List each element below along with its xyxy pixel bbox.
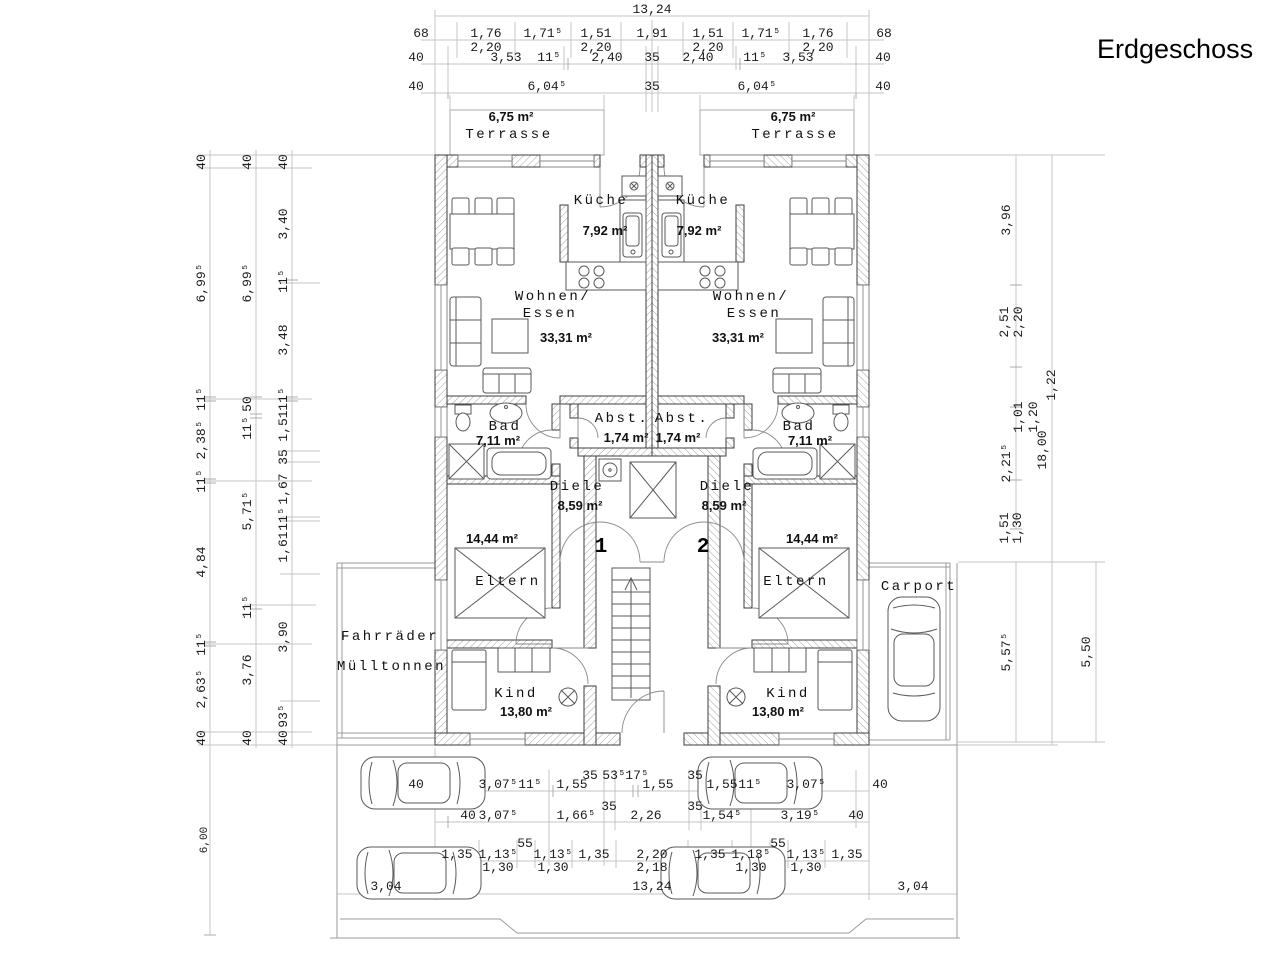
dim: 1,22: [1044, 369, 1059, 400]
dim: 2,51: [997, 306, 1012, 337]
shed-left-walls: [337, 563, 435, 738]
living-label1-right: Wohnen/: [713, 289, 789, 305]
dim: 3,07⁵: [786, 777, 825, 792]
dim: 18,00: [1035, 430, 1050, 469]
unit-left: [435, 155, 652, 745]
terrace-label-left: Terrasse: [465, 127, 552, 143]
storage-label-left: Abst.: [595, 411, 650, 427]
parents-label-left: Eltern: [475, 574, 540, 590]
terrace-area-right: 6,75 m²: [771, 109, 816, 124]
wall-segment: [570, 404, 578, 418]
dim: 2,26: [630, 808, 661, 823]
dim: 1,35: [831, 847, 862, 862]
bins-label: Mülltonnen: [337, 659, 446, 675]
wall-segment: [578, 448, 652, 456]
dim: 3,96: [999, 204, 1014, 235]
dim: 2,18: [636, 860, 667, 875]
wall-segment: [596, 733, 620, 745]
kitchen-label-right: Küche: [676, 193, 731, 209]
dim: 35: [687, 799, 703, 814]
dim: 40: [240, 154, 255, 170]
floorplan-drawing: Erdgeschoss 6,75 m² Terrasse 6,75 m² Ter…: [0, 0, 1280, 960]
dim: 11⁵: [743, 50, 766, 65]
dim: 1,55: [642, 777, 673, 792]
dim: 55: [517, 836, 533, 851]
page-title: Erdgeschoss: [1097, 34, 1253, 64]
dim: 1,01: [1011, 401, 1026, 432]
dim: 1,30: [537, 860, 568, 875]
dim: 13,24: [632, 879, 671, 894]
hall-area-right: 8,59 m²: [702, 498, 747, 513]
dim: 35: [644, 79, 660, 94]
dim: 11⁵: [240, 595, 255, 618]
chair: [497, 248, 514, 265]
dim: 3,90: [276, 621, 291, 652]
wall-segment: [435, 370, 447, 407]
unit-right-mirror: [652, 155, 869, 745]
terrace-label-right: Terrasse: [751, 127, 838, 143]
dim: 40: [408, 777, 424, 792]
stair-direction-arrow: [625, 578, 637, 698]
carport-car: [888, 597, 940, 721]
wall-segment: [570, 438, 578, 448]
dim: 4,84: [194, 546, 209, 577]
dim: 6,99⁵: [194, 263, 209, 302]
dresser: [498, 648, 550, 672]
dim: 1,30: [1010, 512, 1025, 543]
dim: 2,40: [682, 50, 713, 65]
dim: 11⁵: [276, 387, 291, 410]
kitchen-counter: [566, 262, 646, 290]
dim: 1,55: [706, 777, 737, 792]
dim: 2,20: [1011, 306, 1026, 337]
dim: 1,66⁵: [556, 808, 595, 823]
dim: 3,53: [782, 50, 813, 65]
wall-segment: [560, 396, 646, 404]
wall-segment: [447, 396, 526, 404]
dim: 50: [240, 396, 255, 412]
dim: 3,48: [276, 324, 291, 355]
machine-box: [599, 459, 621, 481]
dim: 6,99⁵: [240, 263, 255, 302]
kitchen-area-right: 7,92 m²: [677, 223, 722, 238]
chair: [475, 198, 492, 215]
living-group: [450, 297, 531, 393]
chair: [497, 198, 514, 215]
child-label-left: Kind: [494, 686, 538, 702]
dim: 40: [848, 808, 864, 823]
wall-segment: [584, 686, 596, 745]
carport-label: Carport: [881, 579, 957, 595]
dim: 1,76: [802, 26, 833, 41]
storage-area-right: 1,74 m²: [656, 430, 701, 445]
wall-segment: [594, 155, 600, 167]
kitchen-label-left: Küche: [574, 193, 629, 209]
chair: [452, 198, 469, 215]
dim: 2,38⁵: [194, 420, 209, 459]
dim: 40: [194, 154, 209, 170]
dim: 1,54⁵: [702, 808, 741, 823]
dim: 35: [276, 449, 291, 465]
child-area-right: 13,80 m²: [752, 704, 805, 719]
dim: 11⁵: [738, 777, 761, 792]
dim: 55: [770, 836, 786, 851]
dim: 1,35: [578, 847, 609, 862]
dim: 3,76: [240, 654, 255, 685]
living-label1-left: Wohnen/: [515, 289, 591, 305]
dim: 3,40: [276, 208, 291, 239]
dim: 35: [644, 50, 660, 65]
dim: 3,07⁵: [478, 777, 517, 792]
wall-segment: [435, 733, 470, 745]
dim: 1,71⁵: [523, 26, 562, 41]
wall-segment: [640, 155, 646, 167]
dim: 93⁵: [276, 704, 291, 727]
dim: 6,00: [199, 827, 211, 853]
dim: 1,91: [636, 26, 667, 41]
dim: 40: [276, 154, 291, 170]
dim: 40: [872, 777, 888, 792]
dim: 1,51: [692, 26, 723, 41]
bath-area-left: 7,11 m²: [476, 433, 521, 448]
living-label2-right: Essen: [727, 306, 782, 322]
bed: [452, 650, 486, 710]
dim-ext-left: [198, 155, 435, 745]
dim: 5,50: [1079, 636, 1094, 667]
unit-number-1: 1: [595, 536, 608, 559]
dim: 2,21⁵: [999, 443, 1014, 482]
toilet: [456, 413, 470, 431]
living-area-right: 33,31 m²: [712, 330, 765, 345]
dim: 3,19⁵: [780, 808, 819, 823]
parents-area-left: 14,44 m²: [466, 531, 519, 546]
dim: 6,04⁵: [527, 79, 566, 94]
dim: 11⁵: [194, 469, 209, 492]
dim: 40: [408, 79, 424, 94]
dim: 11⁵: [537, 50, 560, 65]
dim: 40: [408, 50, 424, 65]
dim: 3,07⁵: [478, 808, 517, 823]
entrance-door-arc: [622, 691, 664, 733]
terrace-area-left: 6,75 m²: [489, 109, 534, 124]
sofa: [450, 297, 481, 366]
wall-segment: [512, 155, 540, 167]
plant-leaves: [561, 690, 575, 704]
dim: 1,76: [470, 26, 501, 41]
dim: 40: [240, 730, 255, 746]
dim: 11⁵: [276, 507, 291, 530]
dim: 40: [194, 730, 209, 746]
hall-label-left: Diele: [550, 479, 605, 495]
parents-label-right: Eltern: [763, 574, 828, 590]
hall-label-right: Diele: [700, 479, 755, 495]
bath-area-right: 7,11 m²: [788, 433, 833, 448]
dim: 1,51: [276, 410, 291, 441]
child-area-left: 13,80 m²: [500, 704, 553, 719]
dim: 11⁵: [194, 387, 209, 410]
dim: 1,20: [1026, 401, 1041, 432]
dim: 11⁵: [194, 632, 209, 655]
unit-number-2: 2: [697, 536, 710, 559]
dim: 3,04: [897, 879, 928, 894]
dim: 11⁵: [276, 269, 291, 292]
dim: 40: [875, 79, 891, 94]
dim: 5,71⁵: [240, 491, 255, 530]
wall-segment: [435, 437, 447, 580]
dim: 1,35: [441, 847, 472, 862]
dim: 1,51: [580, 26, 611, 41]
living-area-left: 33,31 m²: [540, 330, 593, 345]
dim: 11⁵: [240, 416, 255, 439]
dim: 35: [582, 768, 598, 783]
storage-area-left: 1,74 m²: [604, 430, 649, 445]
living-label2-left: Essen: [523, 306, 578, 322]
sofa: [483, 368, 531, 393]
dim: 3,04: [370, 879, 401, 894]
wall-segment: [646, 155, 652, 448]
hall-area-left: 8,59 m²: [558, 498, 603, 513]
child-label-right: Kind: [766, 686, 810, 702]
dim: 1,30: [735, 860, 766, 875]
dim: 1,61: [276, 531, 291, 562]
dim: 35: [687, 768, 703, 783]
dim: 5,57⁵: [999, 632, 1014, 671]
wall-segment: [560, 205, 568, 262]
dim: 1,67: [276, 473, 291, 504]
kitchen-area-left: 7,92 m²: [583, 223, 628, 238]
dim: 40: [460, 808, 476, 823]
dim: 53⁵: [602, 768, 625, 783]
bikes-label: Fahrräder: [341, 629, 439, 645]
dim: 13,24: [632, 2, 671, 17]
dining-table: [450, 214, 514, 249]
dim: 68: [413, 26, 429, 41]
coffee-table: [492, 319, 528, 353]
dim: 1,30: [482, 860, 513, 875]
dim: 1,35: [694, 847, 725, 862]
dim: 1,30: [790, 860, 821, 875]
dim: 3,53: [490, 50, 521, 65]
door-arc: [552, 648, 588, 684]
dim: 6,04⁵: [737, 79, 776, 94]
dim: 35: [601, 799, 617, 814]
dining-group: [450, 198, 514, 265]
wall-segment: [552, 404, 560, 430]
floorplan-page: Erdgeschoss 6,75 m² Terrasse 6,75 m² Ter…: [0, 0, 1280, 960]
dim: 11⁵: [518, 777, 541, 792]
chair: [475, 248, 492, 265]
dim: 2,40: [591, 50, 622, 65]
dim: 40: [875, 50, 891, 65]
parents-area-right: 14,44 m²: [786, 531, 839, 546]
dim: 40: [276, 730, 291, 746]
dim: 2,63⁵: [194, 669, 209, 708]
dim: 68: [876, 26, 892, 41]
storage-label-right: Abst.: [655, 411, 710, 427]
chair: [452, 248, 469, 265]
wall-segment: [435, 155, 447, 285]
dim: 1,71⁵: [741, 26, 780, 41]
